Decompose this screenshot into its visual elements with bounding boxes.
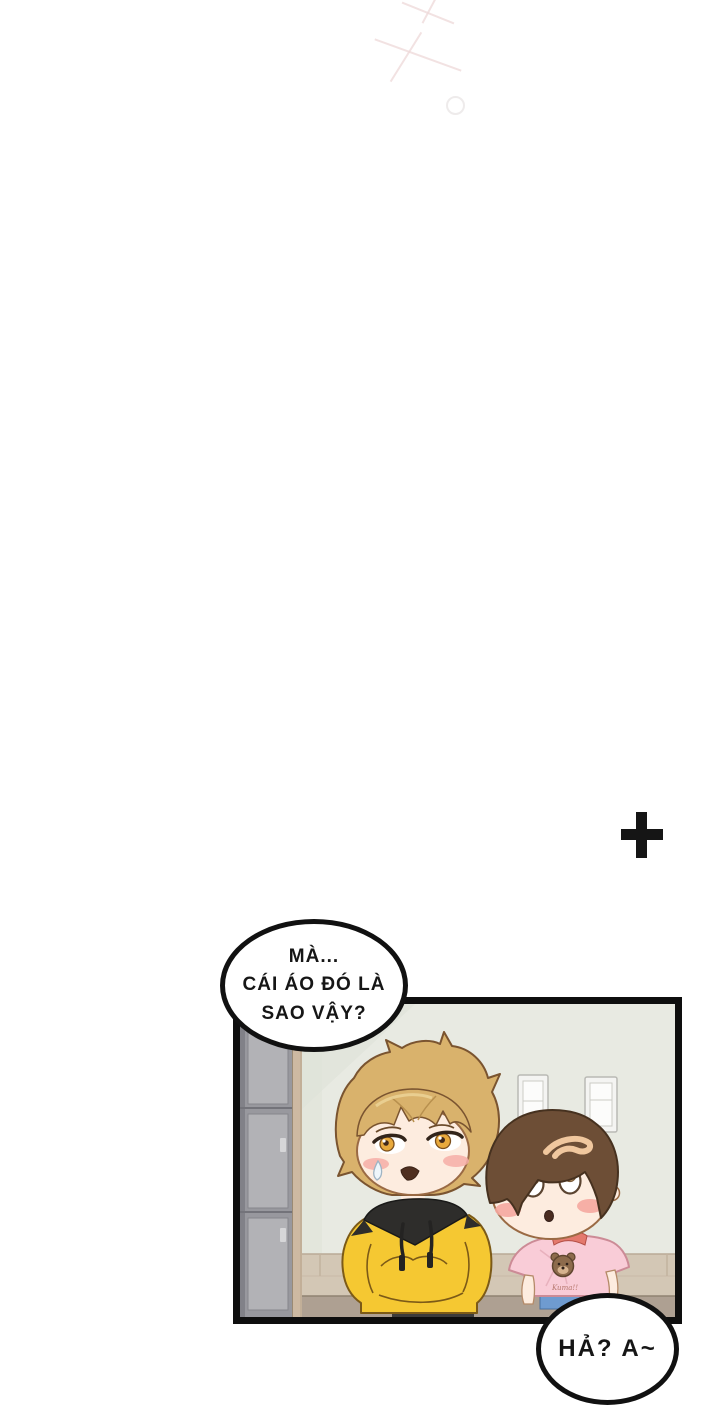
lockers <box>240 1004 292 1317</box>
bubble-line: SAO VẬY? <box>261 1000 366 1029</box>
bubble-line: CÁI ÁO ĐÓ LÀ <box>243 971 386 1000</box>
plus-transition-icon <box>621 812 663 858</box>
character-blonde-boy <box>336 1032 500 1317</box>
comic-page: Kuma!! MÀ... CÁI ÁO <box>0 0 720 1419</box>
teddy-bear-graphic <box>551 1253 575 1277</box>
sparkle-icon <box>374 38 461 71</box>
o-mouth <box>545 1211 554 1222</box>
sparkle-icon <box>390 32 422 82</box>
sparkle-circle-icon <box>446 96 465 115</box>
speech-bubble-top: MÀ... CÁI ÁO ĐÓ LÀ SAO VẬY? <box>220 919 408 1052</box>
speech-bubble-bottom: HẢ? A~ <box>536 1293 679 1405</box>
bubble-line: MÀ... <box>289 943 339 972</box>
plus-vertical-bar <box>636 812 647 858</box>
bubble-line: HẢ? A~ <box>558 1331 656 1367</box>
shirt-text: Kuma!! <box>551 1284 578 1292</box>
